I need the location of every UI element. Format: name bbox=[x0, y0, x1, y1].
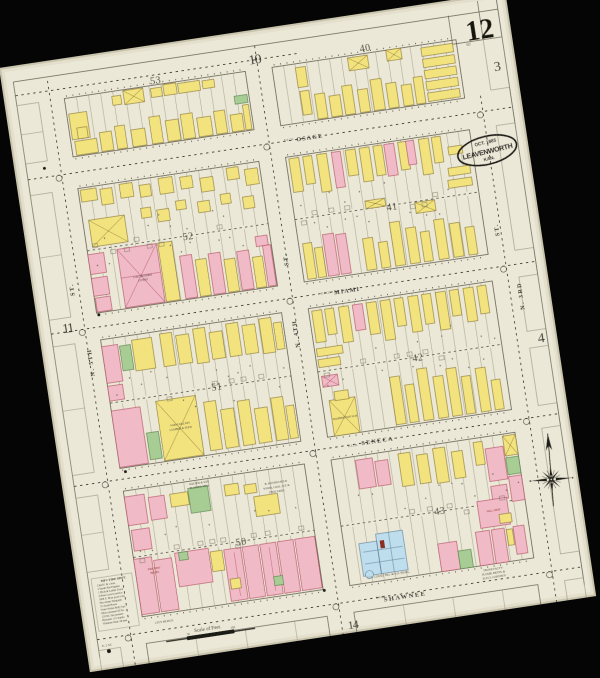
svg-text:40: 40 bbox=[359, 43, 372, 56]
svg-text:53: 53 bbox=[149, 75, 162, 88]
svg-text:52: 52 bbox=[182, 231, 195, 244]
svg-text:43: 43 bbox=[434, 506, 447, 519]
svg-text:51: 51 bbox=[211, 381, 224, 394]
svg-text:41: 41 bbox=[386, 201, 399, 214]
svg-text:50: 50 bbox=[235, 536, 248, 549]
svg-text:42: 42 bbox=[412, 352, 425, 365]
